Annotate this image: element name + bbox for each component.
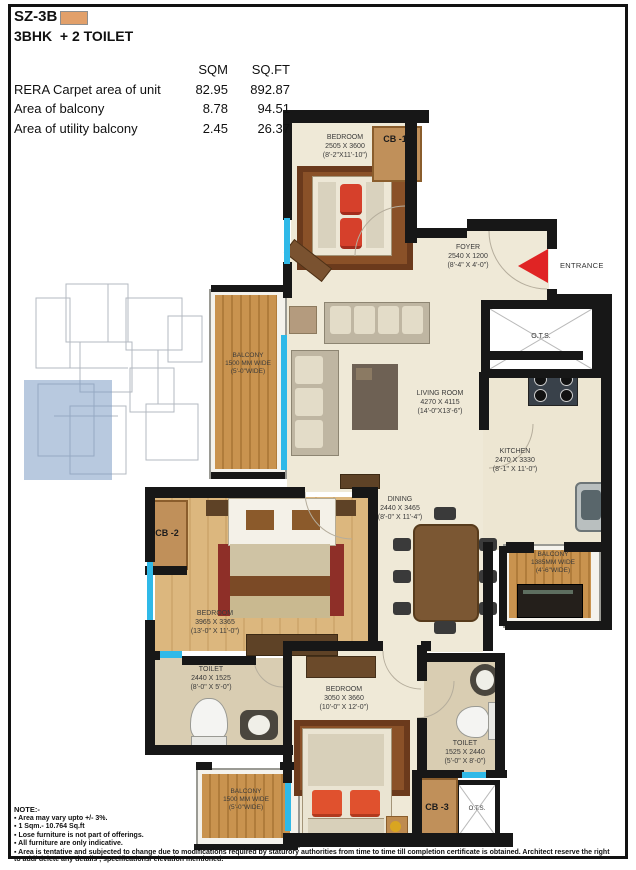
window	[160, 651, 182, 658]
wall	[182, 656, 256, 665]
dining-table	[413, 524, 479, 622]
wall	[547, 219, 557, 249]
wall	[499, 546, 507, 626]
balcony-left-label: BALCONY1500 MM WIDE(5'-0"WIDE)	[217, 352, 279, 376]
wc	[456, 706, 490, 738]
dresser	[306, 656, 376, 678]
wall	[211, 285, 285, 292]
wall	[283, 641, 383, 651]
sink-basin	[581, 490, 601, 520]
area-table: SQM SQ.FT RERA Carpet area of unit 82.95…	[14, 60, 290, 138]
nightstand	[206, 500, 228, 516]
bedroom2-label: BEDROOM3965 X 3365(13'-0" X 11'-0")	[169, 610, 261, 636]
wall	[280, 762, 294, 770]
wall	[145, 745, 293, 755]
toilet-right-label: TOILET1525 X 2440(5'-0" X 8'-0")	[430, 740, 500, 766]
window	[284, 218, 290, 264]
balcony-right-label: BALCONY1385MM WIDE(4'-6"WIDE)	[511, 551, 595, 575]
area-table-header: SQM SQ.FT	[14, 60, 290, 80]
col-sqm: SQM	[176, 60, 228, 80]
dining-chair	[393, 538, 411, 551]
sofa-cushion	[354, 306, 375, 334]
table-row: Area of utility balcony 2.45 26.37	[14, 119, 290, 139]
note-item: All furniture are only indicative.	[14, 840, 618, 847]
key-plan	[18, 276, 220, 486]
sofa-cushion	[295, 356, 323, 384]
unit-title: SZ-3B	[14, 8, 57, 25]
dining-chair	[434, 507, 456, 520]
bed-blanket	[366, 182, 384, 248]
ots-label: O.T.S.	[490, 333, 592, 340]
wall	[601, 294, 612, 630]
bedroom3-label: BEDROOM3050 X 3660(10'-0" X 12'-0")	[298, 686, 390, 712]
wall	[547, 294, 603, 304]
sofa-cushion	[295, 420, 323, 448]
window	[147, 562, 153, 620]
unit-highlight	[24, 380, 112, 480]
sofa-cushion	[295, 388, 323, 416]
wall	[483, 542, 493, 651]
wall	[196, 762, 212, 770]
foyer-label: FOYER2540 X 1200(8'-4" X 4'-0")	[430, 244, 506, 270]
window	[462, 772, 486, 778]
note-item: Area may vary upto +/- 3%.	[14, 815, 618, 822]
floorplan-page: SZ-3B 3BHK + 2 TOILET SQM SQ.FT RERA Car…	[0, 0, 636, 870]
notes-heading: NOTE:-	[14, 805, 618, 814]
bed-pillow	[292, 510, 320, 530]
living-label: LIVING ROOM4270 X 4115(14'-0"X13'-6")	[396, 390, 484, 416]
bed-pillow	[340, 218, 362, 249]
note-item: Area is tentative and subjected to chang…	[14, 849, 618, 864]
window	[281, 335, 287, 470]
notes-list: Area may vary upto +/- 3%. 1 Sqm.- 10.76…	[14, 815, 618, 864]
sofa-cushion	[330, 306, 351, 334]
legend-swatch	[60, 11, 88, 25]
wall	[145, 487, 155, 562]
entrance-arrow	[518, 249, 548, 283]
wall	[283, 110, 429, 123]
bed-blanket	[318, 182, 336, 248]
wall	[486, 770, 507, 778]
notes-section: NOTE:- Area may vary upto +/- 3%. 1 Sqm.…	[14, 805, 618, 864]
bed-blanket	[230, 544, 330, 576]
cb2-label: CB -2	[146, 528, 188, 538]
bed-pillow	[340, 184, 362, 215]
dining-chair	[393, 570, 411, 583]
kitchen-label: KITCHEN2470 X 3330(8'-1" X 11'-0")	[472, 448, 558, 474]
bedroom1-label: BEDROOM2505 X 3600(8'-2"X11'-10")	[301, 134, 389, 160]
wall	[417, 718, 427, 778]
ots-top: O.T.S.	[481, 300, 601, 378]
dining-chair	[434, 621, 456, 634]
toilet-left-label: TOILET2440 X 1525(8'-0" X 5'-0")	[166, 666, 256, 692]
sofa-cushion	[402, 306, 423, 334]
bed-pillow	[246, 510, 274, 530]
nightstand	[334, 500, 356, 516]
wall	[405, 228, 467, 238]
side-table	[289, 306, 317, 334]
bed-blanket-band	[230, 576, 330, 596]
wall	[505, 621, 605, 630]
wall	[145, 651, 155, 755]
basin-bowl	[248, 715, 270, 735]
table-tray	[356, 368, 372, 380]
wall	[145, 487, 305, 498]
dining-chair	[393, 602, 411, 615]
wall	[467, 219, 557, 231]
basin-bowl	[476, 670, 494, 690]
wall	[424, 653, 504, 662]
note-item: 1 Sqm.- 10.764 Sq.ft	[14, 823, 618, 830]
sofa-cushion	[378, 306, 399, 334]
entrance-label: ENTRANCE	[560, 261, 604, 270]
table-row: RERA Carpet area of unit 82.95 892.87	[14, 80, 290, 100]
unit-subtitle: 3BHK + 2 TOILET	[14, 28, 133, 44]
table-row: Area of balcony 8.78 94.51	[14, 99, 290, 119]
wall	[417, 645, 427, 681]
bed-blanket	[308, 734, 384, 786]
col-sqft: SQ.FT	[228, 60, 290, 80]
wall	[481, 351, 583, 360]
wall	[211, 472, 285, 479]
wall	[283, 262, 292, 298]
dining-label: DINING2440 X 3465(8'-0" X 11'-4")	[363, 496, 437, 522]
balcony-left-deck	[215, 295, 277, 469]
tv-screen	[523, 590, 573, 594]
note-item: Lose furniture is not part of offerings.	[14, 832, 618, 839]
